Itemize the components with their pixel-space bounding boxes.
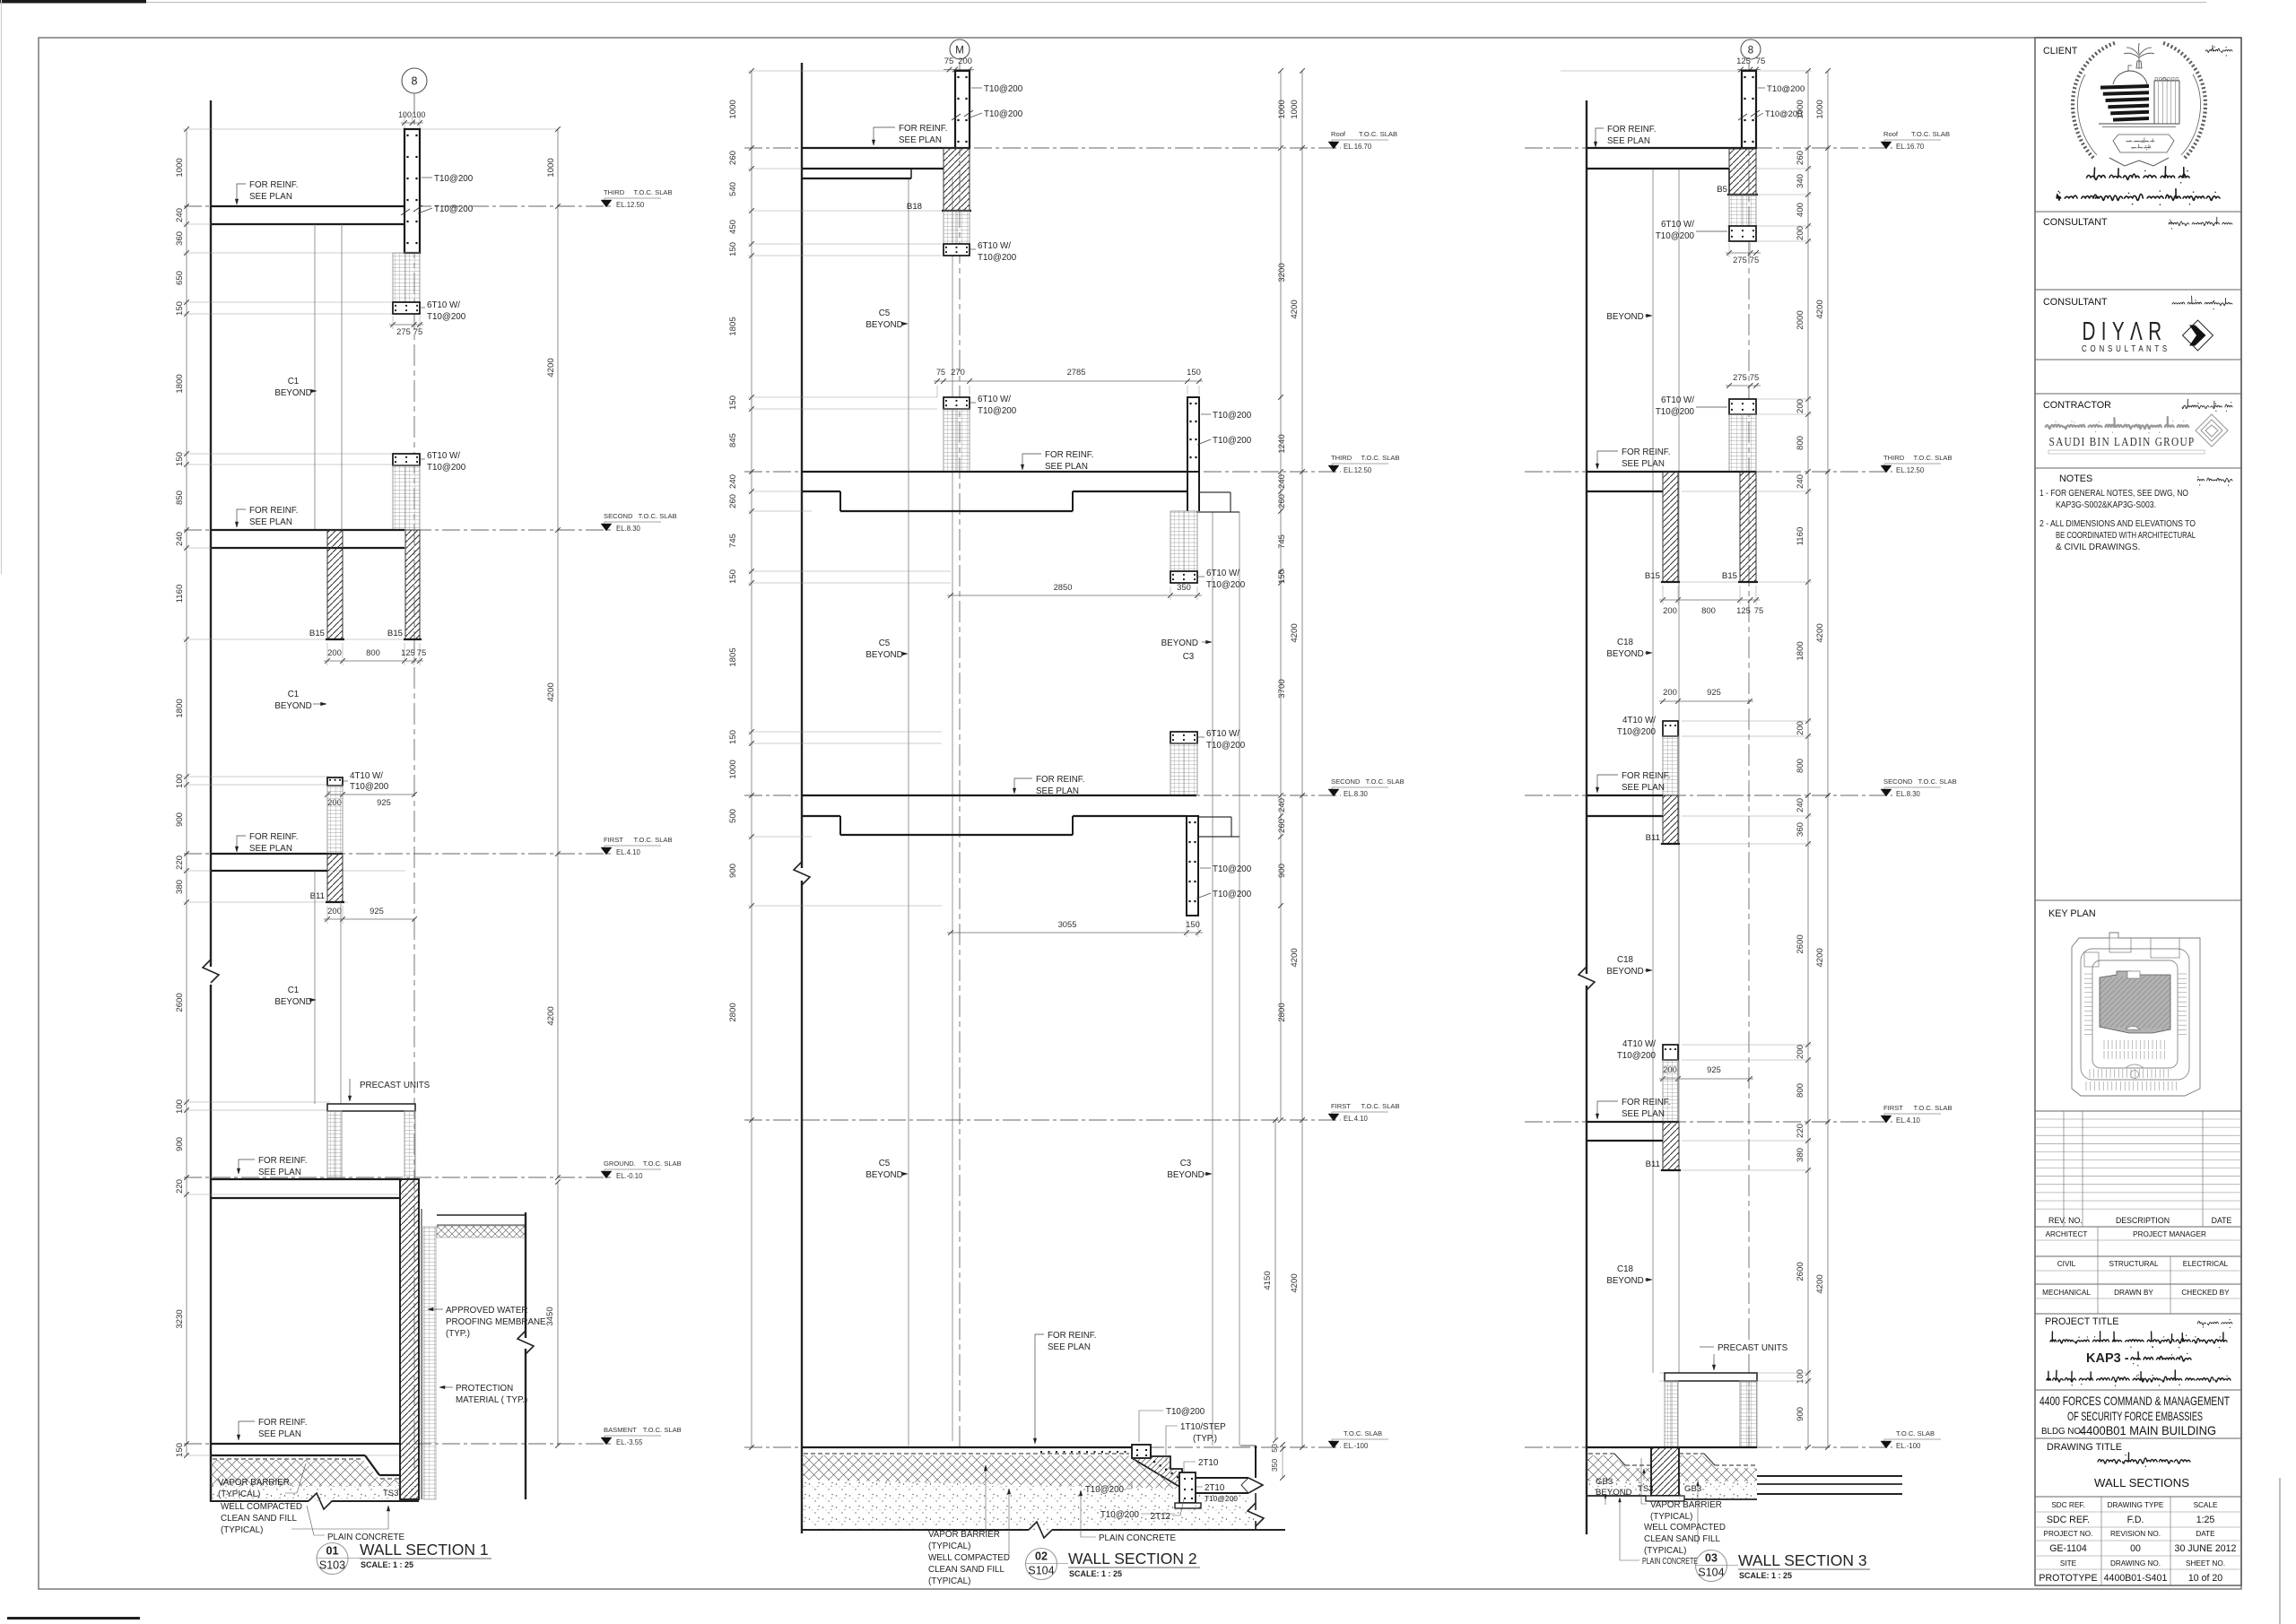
svg-text:800: 800 xyxy=(1796,436,1805,450)
svg-text:F.D.: F.D. xyxy=(2127,1515,2144,1525)
svg-text:150: 150 xyxy=(175,1443,185,1457)
svg-text:925: 925 xyxy=(1707,687,1721,697)
svg-text:DRAWING TYPE: DRAWING TYPE xyxy=(2108,1501,2164,1509)
svg-text:CLEAN SAND FILL: CLEAN SAND FILL xyxy=(928,1565,1004,1575)
svg-text:GE-1104: GE-1104 xyxy=(2049,1543,2087,1554)
svg-text:T.O.C. SLAB: T.O.C. SLAB xyxy=(1366,777,1405,786)
svg-text:SEE PLAN: SEE PLAN xyxy=(899,135,942,145)
svg-text:EL.8.30: EL.8.30 xyxy=(1344,790,1369,798)
svg-text:10 of 20: 10 of 20 xyxy=(2188,1573,2222,1584)
svg-text:150: 150 xyxy=(728,242,738,256)
svg-text:900: 900 xyxy=(175,812,185,827)
svg-text:4200: 4200 xyxy=(546,358,556,377)
svg-text:2T10: 2T10 xyxy=(1198,1458,1219,1468)
svg-text:WALL SECTION 1: WALL SECTION 1 xyxy=(360,1541,489,1559)
svg-text:200: 200 xyxy=(327,647,342,657)
svg-text:GB3: GB3 xyxy=(1596,1477,1613,1487)
svg-text:4200: 4200 xyxy=(1290,300,1300,318)
svg-text:1000: 1000 xyxy=(546,158,556,177)
svg-text:125: 125 xyxy=(401,647,415,657)
svg-text:800: 800 xyxy=(1796,759,1805,773)
svg-text:ARCHITECT: ARCHITECT xyxy=(2046,1230,2088,1238)
svg-text:TS3: TS3 xyxy=(383,1489,398,1498)
svg-text:FOR REINF.: FOR REINF. xyxy=(1048,1331,1096,1341)
svg-text:T10@200: T10@200 xyxy=(1206,580,1246,590)
svg-text:MECHANICAL: MECHANICAL xyxy=(2042,1289,2091,1297)
svg-text:4200: 4200 xyxy=(546,1006,556,1025)
svg-text:4400 FORCES COMMAND & MANAGEME: 4400 FORCES COMMAND & MANAGEMENT xyxy=(2039,1394,2230,1408)
svg-text:T10@200: T10@200 xyxy=(350,782,389,792)
svg-text:SEE PLAN: SEE PLAN xyxy=(1622,459,1665,469)
svg-text:4200: 4200 xyxy=(546,682,556,701)
svg-text:900: 900 xyxy=(1796,1407,1805,1421)
svg-text:T10@200: T10@200 xyxy=(978,406,1017,416)
svg-text:745: 745 xyxy=(1277,534,1287,549)
svg-text:200: 200 xyxy=(1796,399,1805,413)
svg-text:75: 75 xyxy=(944,56,954,66)
svg-text:B15: B15 xyxy=(1645,571,1660,581)
svg-text:(TYPICAL): (TYPICAL) xyxy=(928,1576,970,1586)
svg-text:150: 150 xyxy=(175,301,185,316)
svg-text:T10@200: T10@200 xyxy=(1213,864,1252,874)
svg-text:SCALE: 1 : 25: SCALE: 1 : 25 xyxy=(1069,1569,1122,1578)
svg-text:845: 845 xyxy=(728,433,738,447)
svg-text:EL.12.50: EL.12.50 xyxy=(1896,466,1925,474)
svg-text:C18: C18 xyxy=(1617,638,1634,647)
svg-text:3055: 3055 xyxy=(1058,919,1077,929)
svg-text:220: 220 xyxy=(175,855,185,870)
svg-text:T10@200: T10@200 xyxy=(1100,1510,1140,1520)
svg-text:SDC REF.: SDC REF. xyxy=(2051,1501,2084,1509)
svg-text:MATERIAL ( TYP.): MATERIAL ( TYP.) xyxy=(456,1395,527,1405)
svg-text:T10@200: T10@200 xyxy=(984,109,1023,119)
svg-text:PLAIN CONCRETE: PLAIN CONCRETE xyxy=(1642,1557,1698,1567)
svg-text:C3: C3 xyxy=(1180,1159,1192,1168)
svg-text:WALL SECTION 3: WALL SECTION 3 xyxy=(1738,1551,1867,1569)
svg-text:925: 925 xyxy=(1707,1064,1721,1074)
svg-text:FOR REINF.: FOR REINF. xyxy=(258,1418,307,1428)
svg-text:T.O.C. SLAB: T.O.C. SLAB xyxy=(1359,130,1397,138)
svg-text:500: 500 xyxy=(728,809,738,823)
svg-text:THIRD: THIRD xyxy=(1331,454,1352,462)
svg-text:Roof: Roof xyxy=(1883,130,1899,138)
svg-text:DIYΛR: DIYΛR xyxy=(2083,317,2168,346)
svg-text:VAPOR BARRIER: VAPOR BARRIER xyxy=(1650,1500,1722,1510)
svg-text:3200: 3200 xyxy=(1277,263,1287,282)
svg-text:00: 00 xyxy=(2130,1543,2141,1554)
svg-text:BEYOND: BEYOND xyxy=(1161,638,1198,648)
svg-text:CHECKED BY: CHECKED BY xyxy=(2181,1289,2230,1297)
svg-text:BE COORDINATED WITH ARCHITECTU: BE COORDINATED WITH ARCHITECTURAL xyxy=(2056,531,2196,541)
svg-text:WALL SECTION 2: WALL SECTION 2 xyxy=(1068,1550,1197,1568)
svg-text:PROOFING MEMBRANE: PROOFING MEMBRANE xyxy=(446,1317,546,1327)
svg-text:SDC REF.: SDC REF. xyxy=(2047,1515,2090,1525)
svg-text:T.O.C. SLAB: T.O.C. SLAB xyxy=(1344,1429,1382,1437)
svg-text:(TYPICAL): (TYPICAL) xyxy=(221,1525,263,1535)
svg-text:SEE PLAN: SEE PLAN xyxy=(1622,1109,1665,1119)
svg-text:(TYPICAL): (TYPICAL) xyxy=(218,1489,260,1499)
svg-text:T10@200: T10@200 xyxy=(1656,407,1695,417)
svg-text:6T10 W/: 6T10 W/ xyxy=(978,395,1011,404)
svg-text:SHEET NO.: SHEET NO. xyxy=(2186,1559,2225,1568)
svg-text:2850: 2850 xyxy=(1054,582,1073,592)
svg-text:PLAIN CONCRETE: PLAIN CONCRETE xyxy=(1099,1533,1176,1543)
svg-text:S104: S104 xyxy=(1698,1567,1724,1579)
svg-text:1000: 1000 xyxy=(728,760,738,778)
svg-text:STRUCTURAL: STRUCTURAL xyxy=(2109,1260,2158,1268)
svg-text:(TYPICAL): (TYPICAL) xyxy=(928,1541,970,1551)
svg-text:4T10 W/: 4T10 W/ xyxy=(1622,1039,1656,1049)
svg-text:2600: 2600 xyxy=(175,993,185,1012)
svg-text:360: 360 xyxy=(1796,822,1805,837)
svg-text:EL.12.50: EL.12.50 xyxy=(1344,466,1372,474)
svg-text:FOR REINF.: FOR REINF. xyxy=(249,180,298,190)
svg-text:T.O.C. SLAB: T.O.C. SLAB xyxy=(1361,454,1400,462)
svg-text:TS3: TS3 xyxy=(1638,1484,1654,1494)
svg-text:(TYP.): (TYP.) xyxy=(1193,1434,1217,1444)
svg-text:T.O.C. SLAB: T.O.C. SLAB xyxy=(643,1159,682,1168)
svg-text:450: 450 xyxy=(728,220,738,234)
svg-text:C O N S U L T A N T S: C O N S U L T A N T S xyxy=(2082,344,2168,354)
svg-text:FOR REINF.: FOR REINF. xyxy=(1622,1098,1670,1107)
svg-text:240: 240 xyxy=(728,474,738,489)
svg-text:240: 240 xyxy=(1796,474,1805,489)
svg-text:C3: C3 xyxy=(1183,652,1195,662)
svg-text:2T12: 2T12 xyxy=(1151,1512,1170,1522)
svg-text:B11: B11 xyxy=(1646,1159,1660,1169)
svg-text:2000: 2000 xyxy=(1796,310,1805,329)
svg-text:C1: C1 xyxy=(288,986,300,995)
svg-text:FIRST: FIRST xyxy=(1331,1102,1351,1110)
svg-text:WELL COMPACTED: WELL COMPACTED xyxy=(928,1553,1010,1563)
svg-text:VAPOR BARRIER: VAPOR BARRIER xyxy=(928,1530,1000,1540)
svg-text:PROJECT NO.: PROJECT NO. xyxy=(2044,1530,2093,1538)
svg-text:6T10 W/: 6T10 W/ xyxy=(427,300,460,310)
svg-text:FOR REINF.: FOR REINF. xyxy=(1622,771,1670,781)
svg-text:220: 220 xyxy=(175,1179,185,1194)
svg-text:T10@200: T10@200 xyxy=(1213,411,1252,421)
svg-text:EL.12.50: EL.12.50 xyxy=(616,201,645,209)
svg-text:T10@200: T10@200 xyxy=(1213,436,1252,446)
svg-text:150: 150 xyxy=(728,569,738,584)
svg-text:200: 200 xyxy=(958,56,972,66)
svg-text:NOTES: NOTES xyxy=(2059,473,2092,484)
svg-text:650: 650 xyxy=(175,271,185,285)
svg-text:75: 75 xyxy=(417,647,426,657)
svg-text:T10@200: T10@200 xyxy=(1206,741,1246,751)
svg-text:01: 01 xyxy=(326,1545,339,1558)
svg-text:WELL COMPACTED: WELL COMPACTED xyxy=(221,1502,302,1512)
svg-text:PROJECT TITLE: PROJECT TITLE xyxy=(2045,1316,2118,1327)
svg-text:B11: B11 xyxy=(310,891,325,901)
svg-text:125: 125 xyxy=(1736,56,1751,66)
svg-text:SCALE: 1 : 25: SCALE: 1 : 25 xyxy=(361,1560,413,1569)
svg-text:800: 800 xyxy=(1701,605,1716,615)
svg-text:B11: B11 xyxy=(1646,833,1660,843)
svg-text:6T10 W/: 6T10 W/ xyxy=(1206,569,1239,578)
svg-text:75: 75 xyxy=(1750,372,1759,382)
svg-text:BEYOND: BEYOND xyxy=(274,701,311,711)
svg-text:T.O.C. SLAB: T.O.C. SLAB xyxy=(1896,1429,1935,1437)
svg-text:DRAWN BY: DRAWN BY xyxy=(2114,1289,2153,1297)
svg-text:260: 260 xyxy=(728,151,738,165)
svg-text:EL.16.70: EL.16.70 xyxy=(1344,143,1372,151)
svg-text:WALL SECTIONS: WALL SECTIONS xyxy=(2094,1476,2189,1489)
svg-text:6T10 W/: 6T10 W/ xyxy=(978,241,1011,251)
svg-text:8: 8 xyxy=(412,75,418,88)
svg-text:T.O.C. SLAB: T.O.C. SLAB xyxy=(1914,1104,1952,1112)
svg-text:T10@200: T10@200 xyxy=(978,253,1017,263)
svg-text:B15: B15 xyxy=(1722,571,1737,581)
svg-text:150: 150 xyxy=(1186,919,1200,929)
svg-text:PROTECTION: PROTECTION xyxy=(456,1384,513,1394)
svg-text:150: 150 xyxy=(728,730,738,744)
svg-text:PROTOTYPE: PROTOTYPE xyxy=(2039,1573,2097,1584)
svg-text:1000: 1000 xyxy=(728,100,738,118)
svg-text:275: 275 xyxy=(1733,255,1747,265)
svg-text:SEE PLAN: SEE PLAN xyxy=(1622,783,1665,793)
svg-text:PRECAST UNITS: PRECAST UNITS xyxy=(1718,1343,1788,1353)
svg-text:BEYOND: BEYOND xyxy=(274,997,311,1007)
svg-text:B5: B5 xyxy=(1717,185,1727,195)
svg-text:SECOND: SECOND xyxy=(604,512,633,520)
svg-text:BLDG NO.: BLDG NO. xyxy=(2041,1427,2083,1437)
svg-text:240: 240 xyxy=(1277,798,1287,812)
svg-text:T10@200: T10@200 xyxy=(1656,231,1695,241)
svg-text:FIRST: FIRST xyxy=(604,836,623,844)
svg-text:ELECTRICAL: ELECTRICAL xyxy=(2183,1260,2229,1268)
svg-text:T10@200: T10@200 xyxy=(434,204,474,214)
svg-text:200: 200 xyxy=(1796,721,1805,735)
svg-text:EL.-100: EL.-100 xyxy=(1344,1442,1369,1450)
svg-text:200: 200 xyxy=(1663,605,1677,615)
svg-text:WELL COMPACTED: WELL COMPACTED xyxy=(1644,1523,1726,1533)
svg-text:200: 200 xyxy=(1796,1045,1805,1059)
svg-text:4T10 W/: 4T10 W/ xyxy=(350,771,383,781)
svg-text:400: 400 xyxy=(1796,203,1805,217)
svg-text:BEYOND: BEYOND xyxy=(1606,649,1643,659)
svg-text:C5: C5 xyxy=(879,308,891,318)
svg-text:1 - FOR GENERAL NOTES, SEE DWG: 1 - FOR GENERAL NOTES, SEE DWG, NO xyxy=(2039,489,2188,499)
svg-text:240: 240 xyxy=(175,208,185,222)
svg-text:CONTRACTOR: CONTRACTOR xyxy=(2043,400,2111,411)
svg-text:BEYOND: BEYOND xyxy=(1596,1488,1632,1498)
svg-text:200: 200 xyxy=(327,906,342,916)
svg-text:T10@200: T10@200 xyxy=(1166,1407,1205,1417)
svg-text:T10@200: T10@200 xyxy=(1085,1485,1125,1495)
svg-text:SEE PLAN: SEE PLAN xyxy=(249,517,292,527)
svg-text:SEE PLAN: SEE PLAN xyxy=(258,1429,301,1439)
svg-text:BEYOND: BEYOND xyxy=(1606,1276,1643,1286)
svg-text:1000: 1000 xyxy=(1277,100,1287,118)
svg-text:100: 100 xyxy=(175,774,185,788)
svg-text:& CIVIL DRAWINGS.: & CIVIL DRAWINGS. xyxy=(2056,543,2140,552)
svg-text:260: 260 xyxy=(1796,151,1805,165)
svg-text:EL.4.10: EL.4.10 xyxy=(616,848,641,856)
svg-text:(TYPICAL): (TYPICAL) xyxy=(1650,1512,1692,1522)
svg-text:925: 925 xyxy=(377,797,391,807)
svg-text:8: 8 xyxy=(1748,46,1753,56)
svg-text:PROJECT MANAGER: PROJECT MANAGER xyxy=(2133,1230,2206,1238)
svg-text:DRAWING NO.: DRAWING NO. xyxy=(2110,1559,2161,1568)
svg-text:T.O.C. SLAB: T.O.C. SLAB xyxy=(1918,777,1957,786)
svg-text:2785: 2785 xyxy=(1067,367,1086,377)
svg-text:T.O.C. SLAB: T.O.C. SLAB xyxy=(1914,454,1952,462)
svg-text:C1: C1 xyxy=(288,377,300,386)
svg-text:350: 350 xyxy=(1177,582,1191,592)
svg-text:BEYOND: BEYOND xyxy=(1167,1170,1204,1180)
svg-text:1805: 1805 xyxy=(728,317,738,335)
svg-text:350: 350 xyxy=(1270,1459,1279,1472)
svg-text:T.O.C. SLAB: T.O.C. SLAB xyxy=(643,1426,682,1434)
svg-text:CLEAN SAND FILL: CLEAN SAND FILL xyxy=(1644,1534,1720,1544)
svg-text:6T10 W/: 6T10 W/ xyxy=(1661,220,1694,230)
svg-text:1:25: 1:25 xyxy=(2196,1515,2215,1525)
svg-text:4200: 4200 xyxy=(1815,948,1825,967)
svg-text:FOR REINF.: FOR REINF. xyxy=(1036,775,1084,785)
svg-text:C18: C18 xyxy=(1617,955,1634,965)
svg-text:CONSULTANT: CONSULTANT xyxy=(2043,217,2108,228)
svg-text:BEYOND: BEYOND xyxy=(865,1170,902,1180)
svg-text:1800: 1800 xyxy=(175,699,185,717)
svg-text:3700: 3700 xyxy=(1277,679,1287,698)
svg-text:220: 220 xyxy=(1796,1124,1805,1138)
svg-text:SEE PLAN: SEE PLAN xyxy=(258,1168,301,1177)
svg-text:2 - ALL DIMENSIONS AND ELEVATI: 2 - ALL DIMENSIONS AND ELEVATIONS TO xyxy=(2039,519,2196,529)
svg-text:EL.-0.10: EL.-0.10 xyxy=(616,1172,643,1180)
svg-text:360: 360 xyxy=(175,231,185,246)
svg-text:B15: B15 xyxy=(309,629,325,638)
svg-text:270: 270 xyxy=(951,367,965,377)
svg-text:FOR REINF.: FOR REINF. xyxy=(249,832,298,842)
svg-text:2T10: 2T10 xyxy=(1205,1483,1225,1493)
svg-text:260: 260 xyxy=(1277,494,1287,508)
svg-text:T10@200: T10@200 xyxy=(1767,84,1805,94)
svg-text:75: 75 xyxy=(1756,56,1766,66)
svg-text:150: 150 xyxy=(1187,367,1201,377)
svg-text:S104: S104 xyxy=(1028,1565,1054,1577)
svg-text:150: 150 xyxy=(728,395,738,410)
svg-text:CIVIL: CIVIL xyxy=(2057,1260,2076,1268)
svg-text:DATE: DATE xyxy=(2196,1530,2215,1538)
svg-text:REV. NO.: REV. NO. xyxy=(2048,1216,2083,1225)
svg-text:DRAWING TITLE: DRAWING TITLE xyxy=(2047,1442,2122,1453)
svg-text:VAPOR BARRIER: VAPOR BARRIER xyxy=(218,1478,290,1488)
svg-text:925: 925 xyxy=(370,906,384,916)
svg-text:4400B01-S401: 4400B01-S401 xyxy=(2104,1573,2168,1584)
svg-text:SEE PLAN: SEE PLAN xyxy=(249,844,292,854)
svg-text:EL.4.10: EL.4.10 xyxy=(1896,1116,1921,1125)
svg-text:THIRD: THIRD xyxy=(1883,454,1905,462)
svg-text:M: M xyxy=(955,46,964,56)
svg-text:4200: 4200 xyxy=(1815,1274,1825,1293)
svg-text:1160: 1160 xyxy=(175,585,185,604)
svg-text:T.O.C. SLAB: T.O.C. SLAB xyxy=(1361,1102,1400,1110)
svg-text:T10@200: T10@200 xyxy=(1205,1494,1238,1503)
svg-text:SITE: SITE xyxy=(2060,1559,2077,1568)
svg-text:745: 745 xyxy=(728,534,738,548)
svg-text:SEE PLAN: SEE PLAN xyxy=(249,192,292,202)
svg-text:FOR REINF.: FOR REINF. xyxy=(1045,450,1093,460)
svg-text:125: 125 xyxy=(1736,605,1751,615)
svg-text:C5: C5 xyxy=(879,638,891,648)
svg-text:T.O.C. SLAB: T.O.C. SLAB xyxy=(1911,130,1950,138)
svg-text:1000: 1000 xyxy=(1815,100,1825,118)
svg-text:900: 900 xyxy=(1277,864,1287,878)
svg-text:KEY PLAN: KEY PLAN xyxy=(2048,908,2096,919)
svg-text:03: 03 xyxy=(1705,1552,1718,1565)
svg-text:EL.8.30: EL.8.30 xyxy=(1896,790,1921,798)
svg-text:DATE: DATE xyxy=(2212,1216,2232,1225)
svg-text:T10@200: T10@200 xyxy=(1213,890,1252,899)
svg-text:02: 02 xyxy=(1035,1550,1048,1563)
svg-text:75: 75 xyxy=(413,326,422,336)
svg-text:4200: 4200 xyxy=(1290,1273,1300,1292)
svg-text:T10@200: T10@200 xyxy=(1617,1051,1657,1061)
svg-text:FOR REINF.: FOR REINF. xyxy=(1622,447,1670,457)
svg-text:B15: B15 xyxy=(387,629,403,638)
svg-text:900: 900 xyxy=(728,864,738,878)
svg-text:SECOND: SECOND xyxy=(1331,777,1361,786)
svg-text:240: 240 xyxy=(1277,474,1287,489)
svg-text:B18: B18 xyxy=(907,202,922,212)
svg-text:KAP3 -: KAP3 - xyxy=(2086,1351,2129,1366)
svg-text:SECOND: SECOND xyxy=(1883,777,1913,786)
svg-text:EL.4.10: EL.4.10 xyxy=(1344,1115,1369,1123)
svg-text:SCALE: 1 : 25: SCALE: 1 : 25 xyxy=(1739,1571,1792,1580)
svg-text:T10@200: T10@200 xyxy=(427,463,466,473)
svg-text:Roof: Roof xyxy=(1331,130,1346,138)
svg-text:2800: 2800 xyxy=(1277,1003,1287,1021)
svg-text:FOR REINF.: FOR REINF. xyxy=(1607,125,1656,135)
svg-text:BEYOND: BEYOND xyxy=(865,320,902,330)
svg-text:100: 100 xyxy=(1796,1369,1805,1384)
svg-text:FOR REINF.: FOR REINF. xyxy=(249,506,298,516)
svg-text:T.O.C. SLAB: T.O.C. SLAB xyxy=(639,512,677,520)
svg-text:4200: 4200 xyxy=(1815,623,1825,642)
svg-text:SEE PLAN: SEE PLAN xyxy=(1045,462,1088,472)
svg-text:150: 150 xyxy=(175,452,185,466)
svg-text:T.O.C. SLAB: T.O.C. SLAB xyxy=(634,836,673,844)
svg-text:GROUND.: GROUND. xyxy=(604,1159,636,1168)
svg-text:4200: 4200 xyxy=(1815,300,1825,318)
svg-text:6T10 W/: 6T10 W/ xyxy=(427,451,460,461)
svg-text:850: 850 xyxy=(175,491,185,505)
svg-text:FOR REINF.: FOR REINF. xyxy=(899,124,947,134)
svg-text:800: 800 xyxy=(1796,1083,1805,1098)
svg-text:C1: C1 xyxy=(288,690,300,699)
svg-text:260: 260 xyxy=(728,494,738,508)
svg-text:4T10 W/: 4T10 W/ xyxy=(1622,716,1656,725)
svg-text:(TYP.): (TYP.) xyxy=(446,1329,470,1339)
svg-text:3450: 3450 xyxy=(545,1307,555,1325)
svg-text:4200: 4200 xyxy=(1290,948,1300,967)
svg-text:KAP3G-S002&KAP3G-S003.: KAP3G-S002&KAP3G-S003. xyxy=(2056,500,2156,510)
svg-text:EL.-3.55: EL.-3.55 xyxy=(616,1438,643,1446)
svg-text:3230: 3230 xyxy=(175,1309,185,1328)
svg-text:1240: 1240 xyxy=(1277,434,1287,453)
svg-text:FOR REINF.: FOR REINF. xyxy=(258,1156,307,1166)
svg-text:4200: 4200 xyxy=(1290,623,1300,642)
svg-text:(TYPICAL): (TYPICAL) xyxy=(1644,1546,1686,1556)
svg-text:200: 200 xyxy=(1796,226,1805,240)
svg-text:240: 240 xyxy=(175,532,185,546)
svg-text:T10@200: T10@200 xyxy=(1765,109,1802,118)
svg-text:BEYOND: BEYOND xyxy=(274,388,311,398)
svg-text:APPROVED WATER: APPROVED WATER xyxy=(446,1306,527,1316)
svg-text:4400B01 MAIN BUILDING: 4400B01 MAIN BUILDING xyxy=(2080,1424,2216,1437)
svg-text:PRECAST UNITS: PRECAST UNITS xyxy=(360,1081,430,1090)
